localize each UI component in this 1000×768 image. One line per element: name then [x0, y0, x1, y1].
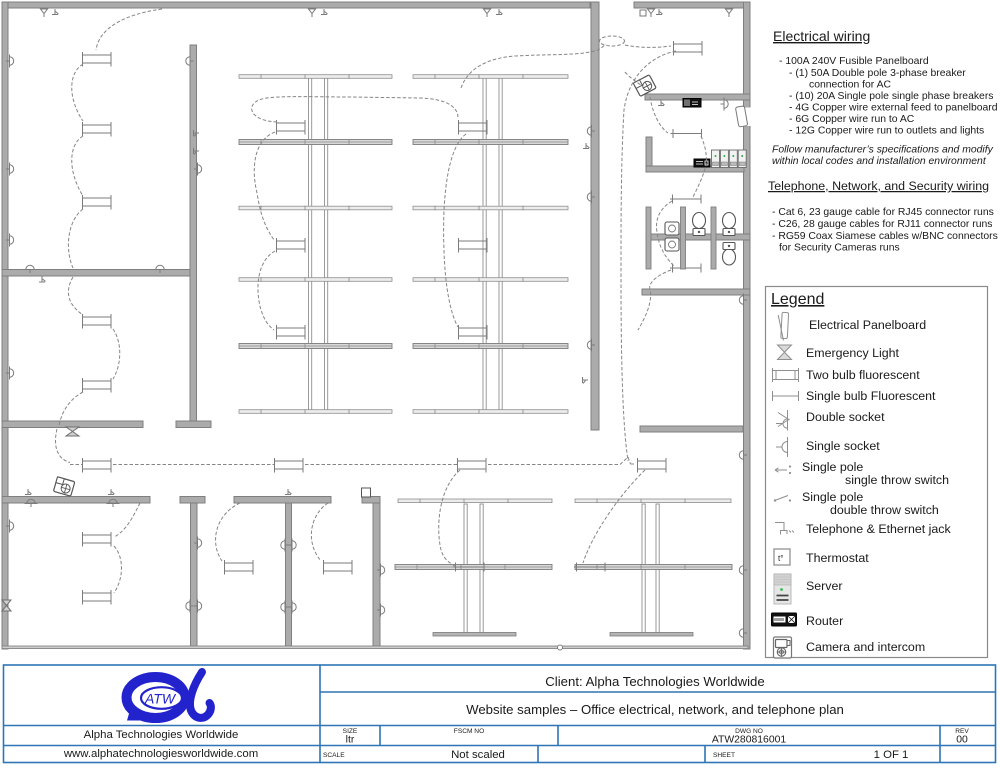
svg-text:Single pole: Single pole — [802, 460, 863, 474]
svg-text:Client: Alpha Technologies Wor: Client: Alpha Technologies Worldwide — [545, 674, 764, 689]
svg-text:Server: Server — [806, 579, 843, 593]
svg-text:Website samples – Office elect: Website samples – Office electrical, net… — [466, 702, 844, 717]
svg-text:FSCM NO: FSCM NO — [454, 728, 484, 735]
svg-text:SHEET: SHEET — [713, 752, 735, 759]
svg-text:Double socket: Double socket — [806, 410, 885, 424]
svg-text:Single socket: Single socket — [806, 439, 880, 453]
svg-text:Single pole: Single pole — [802, 490, 863, 504]
svg-text:Legend: Legend — [771, 291, 824, 308]
svg-text:t°: t° — [778, 554, 783, 563]
svg-text:ltr: ltr — [346, 735, 355, 746]
svg-text:www.alphatechnologiesworldwide: www.alphatechnologiesworldwide.com — [63, 748, 258, 760]
svg-text:ATW280816001: ATW280816001 — [712, 735, 787, 746]
svg-text:Electrical wiring: Electrical wiring — [773, 28, 870, 44]
svg-text:single throw switch: single throw switch — [845, 473, 949, 487]
svg-text:Router: Router — [806, 614, 843, 628]
svg-text:Telephone & Ethernet jack: Telephone & Ethernet jack — [806, 522, 951, 536]
svg-text:Electrical Panelboard: Electrical Panelboard — [809, 318, 926, 332]
svg-text:Camera and intercom: Camera and intercom — [806, 640, 925, 654]
svg-text:Follow manufacturer’s specific: Follow manufacturer’s specifications and… — [772, 145, 996, 168]
svg-text:00: 00 — [956, 735, 968, 746]
svg-text:Thermostat: Thermostat — [806, 551, 869, 565]
svg-text:Alpha Technologies Worldwide: Alpha Technologies Worldwide — [84, 729, 239, 741]
svg-text:Two bulb fluorescent: Two bulb fluorescent — [806, 368, 920, 382]
svg-text:Emergency Light: Emergency Light — [806, 346, 900, 360]
svg-text:Telephone, Network, and Securi: Telephone, Network, and Security wiring — [768, 179, 989, 193]
svg-text:Not scaled: Not scaled — [451, 749, 505, 761]
svg-text:Single bulb Fluorescent: Single bulb Fluorescent — [806, 389, 936, 403]
svg-text:SCALE: SCALE — [323, 752, 345, 759]
svg-text:double throw switch: double throw switch — [830, 503, 939, 517]
svg-text:1 OF 1: 1 OF 1 — [874, 749, 909, 761]
svg-text:ATW: ATW — [144, 691, 177, 707]
